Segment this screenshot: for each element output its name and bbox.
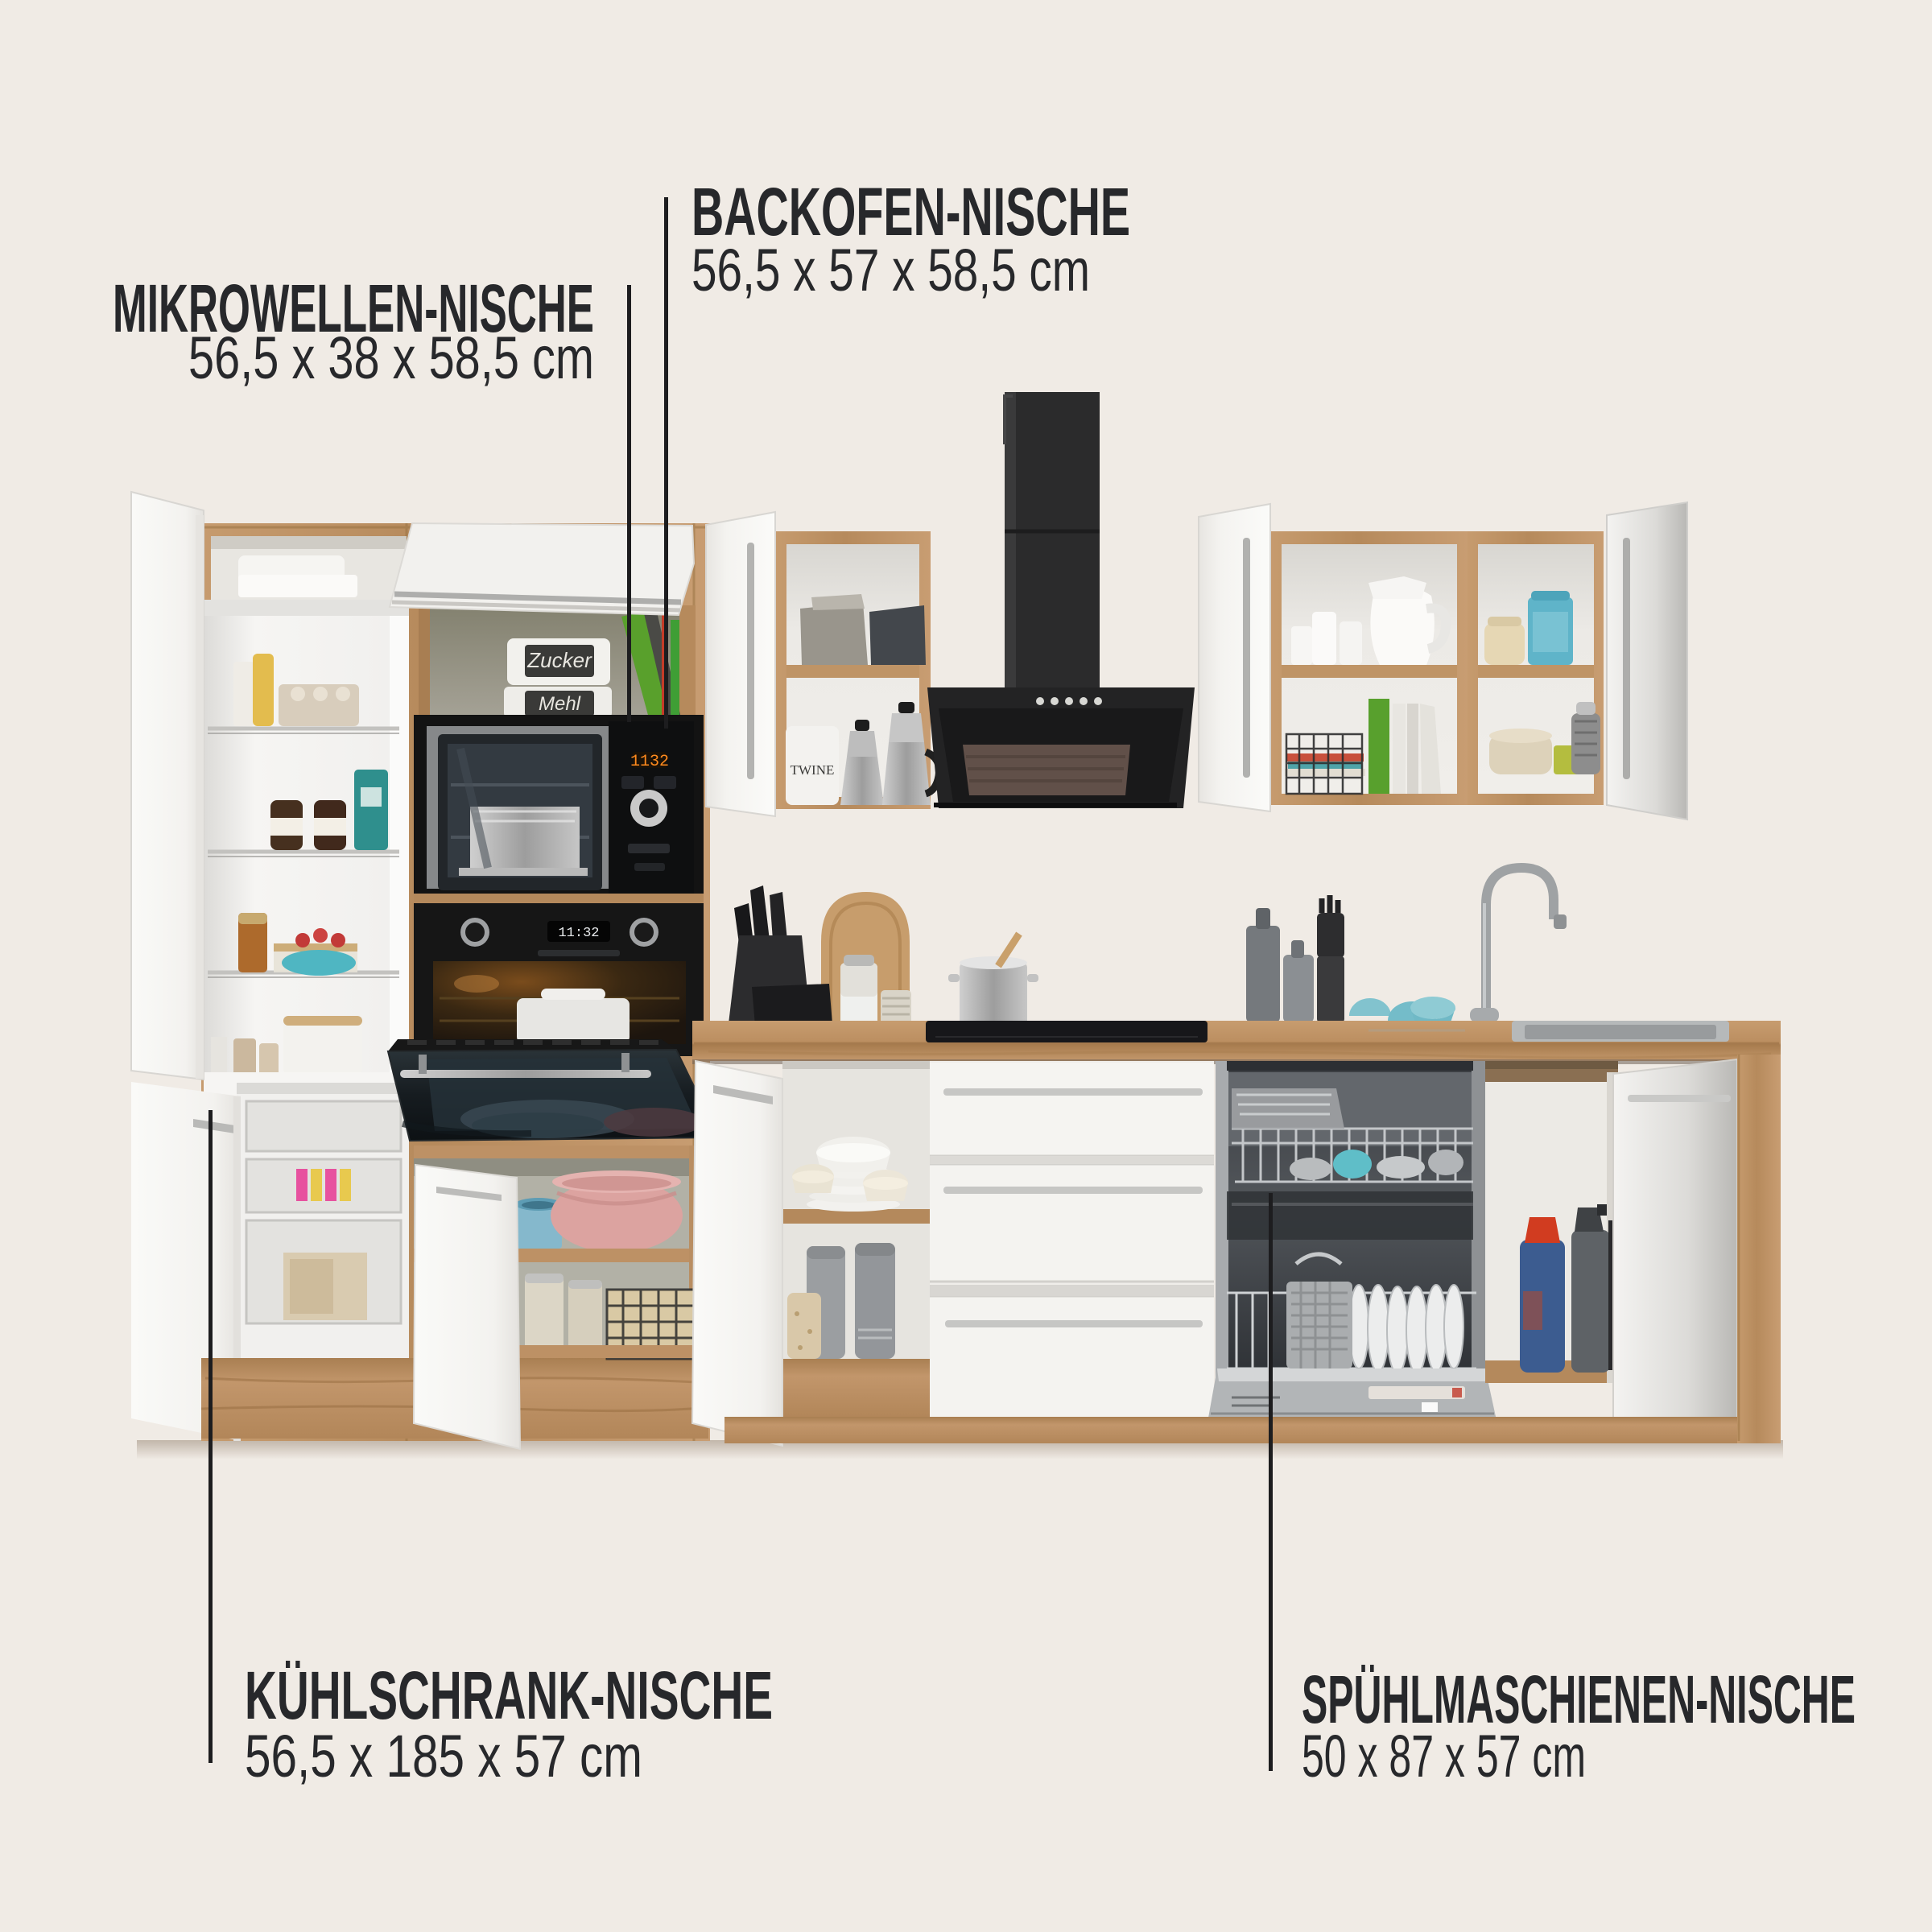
- svg-text:Zucker: Zucker: [526, 648, 592, 672]
- svg-text:KÜHLSCHRANK-NISCHE: KÜHLSCHRANK-NISCHE: [245, 1657, 773, 1733]
- svg-text:11:32: 11:32: [558, 926, 599, 941]
- svg-text:Mehl: Mehl: [539, 693, 581, 715]
- svg-text:56,5 x 185 x 57 cm: 56,5 x 185 x 57 cm: [245, 1723, 642, 1790]
- svg-text:50 x 87 x 57 cm: 50 x 87 x 57 cm: [1302, 1723, 1586, 1790]
- svg-text:1132: 1132: [630, 753, 669, 771]
- svg-text:56,5 x 57 x 58,5 cm: 56,5 x 57 x 58,5 cm: [691, 237, 1090, 303]
- svg-text:TWINE: TWINE: [791, 762, 835, 778]
- svg-text:56,5 x 38 x 58,5 cm: 56,5 x 38 x 58,5 cm: [188, 324, 594, 391]
